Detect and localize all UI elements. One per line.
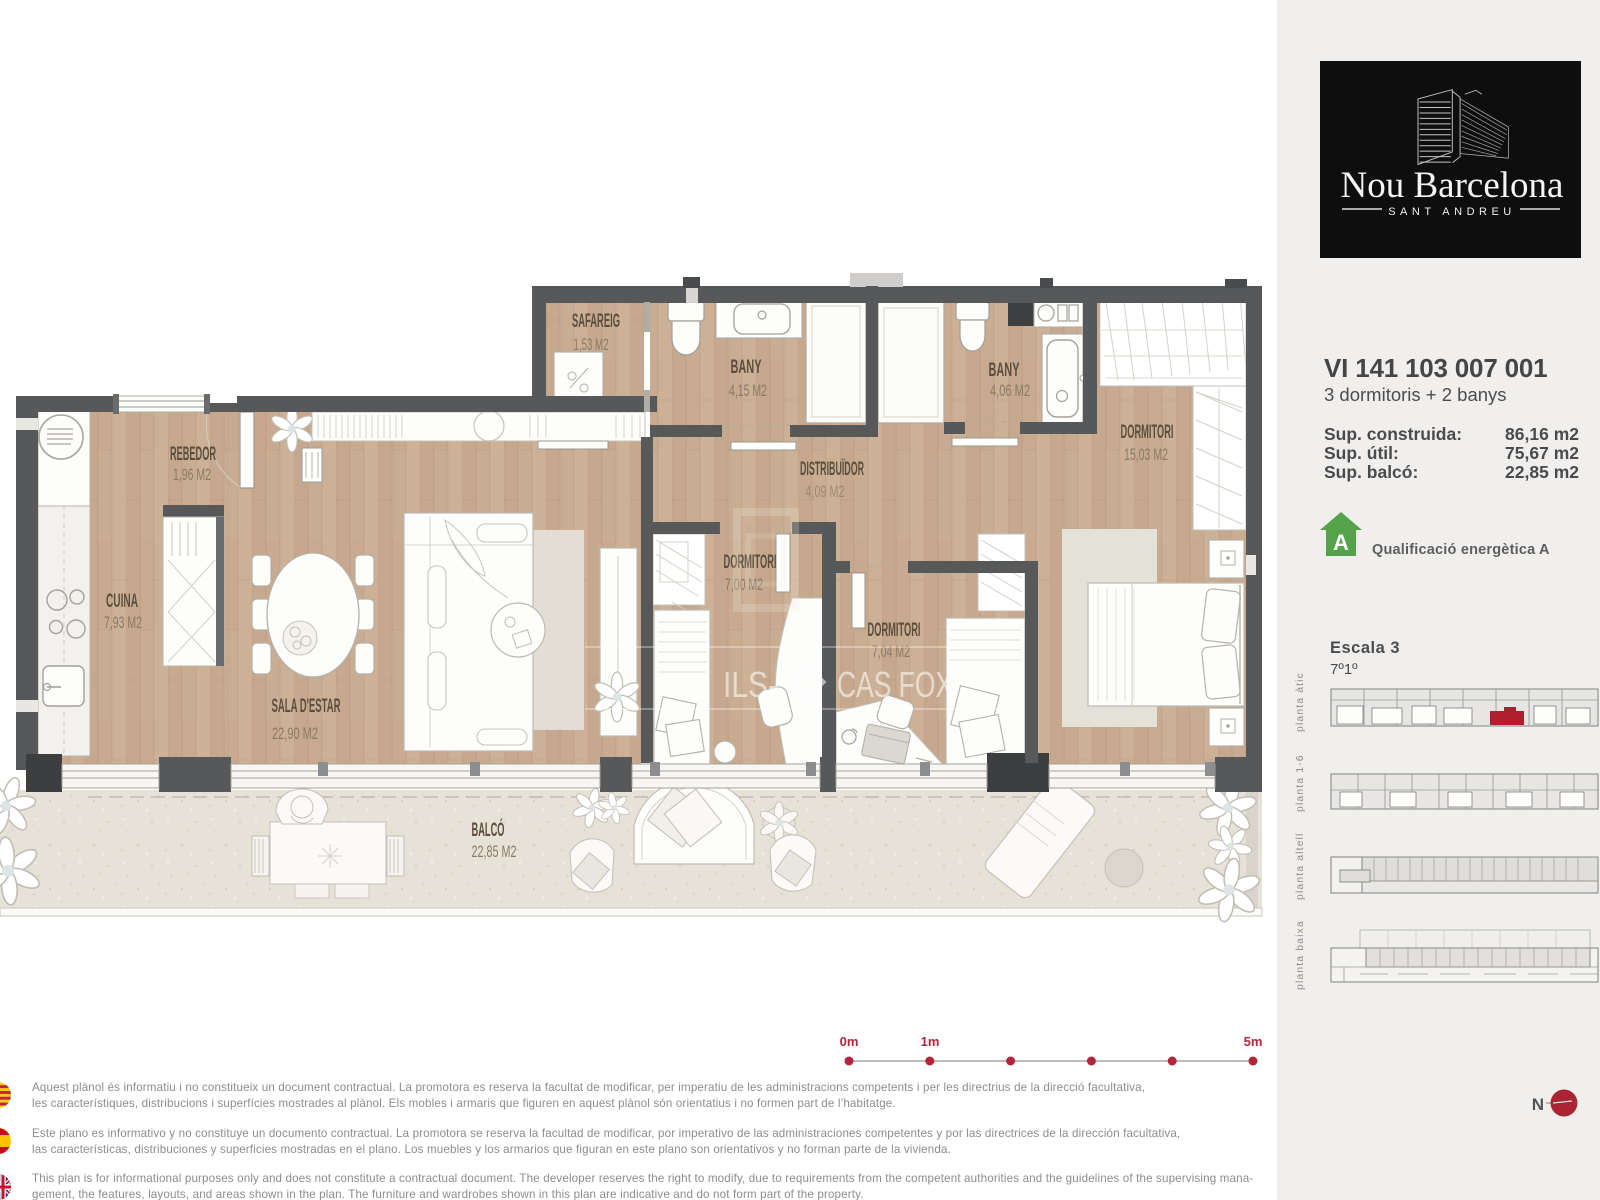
svg-text:Sup. útil:: Sup. útil: xyxy=(1324,443,1399,463)
svg-text:1,96 M2: 1,96 M2 xyxy=(173,465,211,484)
svg-text:A: A xyxy=(1333,530,1349,555)
svg-text:86,16 m2: 86,16 m2 xyxy=(1505,424,1579,444)
svg-text:DISTRIBUÏDOR: DISTRIBUÏDOR xyxy=(800,459,864,480)
svg-text:1m: 1m xyxy=(921,1034,940,1049)
svg-text:gement, the features, layouts,: gement, the features, layouts, and areas… xyxy=(32,1188,864,1200)
svg-text:REBEDOR: REBEDOR xyxy=(170,444,216,465)
svg-text:Sup. balcó:: Sup. balcó: xyxy=(1324,462,1418,482)
svg-text:BANY: BANY xyxy=(989,360,1020,381)
svg-text:4,09 M2: 4,09 M2 xyxy=(806,482,845,501)
svg-text:CAS FOX: CAS FOX xyxy=(837,664,953,705)
svg-text:planta àtic: planta àtic xyxy=(1294,672,1306,732)
svg-text:1,53 M2: 1,53 M2 xyxy=(574,335,609,354)
svg-text:SALA D'ESTAR: SALA D'ESTAR xyxy=(272,696,341,717)
svg-text:7,93 M2: 7,93 M2 xyxy=(104,613,142,632)
svg-text:Qualificació energètica A: Qualificació energètica A xyxy=(1372,542,1550,558)
svg-text:7,04 M2: 7,04 M2 xyxy=(872,642,910,661)
svg-text:planta altell: planta altell xyxy=(1294,833,1306,900)
svg-text:22,90 M2: 22,90 M2 xyxy=(272,724,318,743)
svg-text:planta baixa: planta baixa xyxy=(1294,920,1306,990)
svg-text:22,85 m2: 22,85 m2 xyxy=(1505,462,1579,482)
svg-text:Sup. construida:: Sup. construida: xyxy=(1324,424,1462,444)
svg-text:Este plano es informativo y no: Este plano es informativo y no constituy… xyxy=(32,1127,1180,1140)
svg-text:15,03 M2: 15,03 M2 xyxy=(1124,445,1168,464)
svg-text:VI 141 103 007 001: VI 141 103 007 001 xyxy=(1324,353,1547,383)
svg-text:0m: 0m xyxy=(840,1034,859,1049)
svg-text:DORMITORI: DORMITORI xyxy=(868,620,921,641)
svg-text:Nou Barcelona: Nou Barcelona xyxy=(1341,165,1564,206)
svg-text:22,85 M2: 22,85 M2 xyxy=(472,842,517,861)
svg-text:4,06 M2: 4,06 M2 xyxy=(990,381,1030,400)
svg-text:3 dormitoris + 2 banys: 3 dormitoris + 2 banys xyxy=(1324,384,1507,405)
svg-text:BALCÓ: BALCÓ xyxy=(472,819,505,841)
svg-text:les característiques, distribu: les característiques, distribucions i su… xyxy=(32,1097,896,1110)
svg-text:5m: 5m xyxy=(1244,1034,1263,1049)
svg-text:ILS-: ILS- xyxy=(723,664,778,705)
svg-text:BANY: BANY xyxy=(731,357,762,378)
svg-text:CUINA: CUINA xyxy=(106,591,138,612)
svg-text:SANT ANDREU: SANT ANDREU xyxy=(1388,206,1516,218)
svg-text:las características, distribuc: las características, distribuciones y su… xyxy=(32,1143,951,1156)
svg-text:4,15 M2: 4,15 M2 xyxy=(729,381,767,400)
svg-text:planta 1-6: planta 1-6 xyxy=(1294,754,1306,812)
svg-text:This plan is for informational: This plan is for informational purposes … xyxy=(32,1172,1253,1185)
svg-text:DORMITORI: DORMITORI xyxy=(1121,422,1174,443)
svg-text:N: N xyxy=(1532,1095,1544,1114)
svg-text:SAFAREIG: SAFAREIG xyxy=(572,311,620,332)
svg-text:Aquest plànol és informatiu i: Aquest plànol és informatiu i no constit… xyxy=(32,1081,1145,1094)
svg-text:Escala 3: Escala 3 xyxy=(1330,639,1400,657)
svg-text:7º1º: 7º1º xyxy=(1330,661,1358,678)
svg-text:75,67 m2: 75,67 m2 xyxy=(1505,443,1579,463)
